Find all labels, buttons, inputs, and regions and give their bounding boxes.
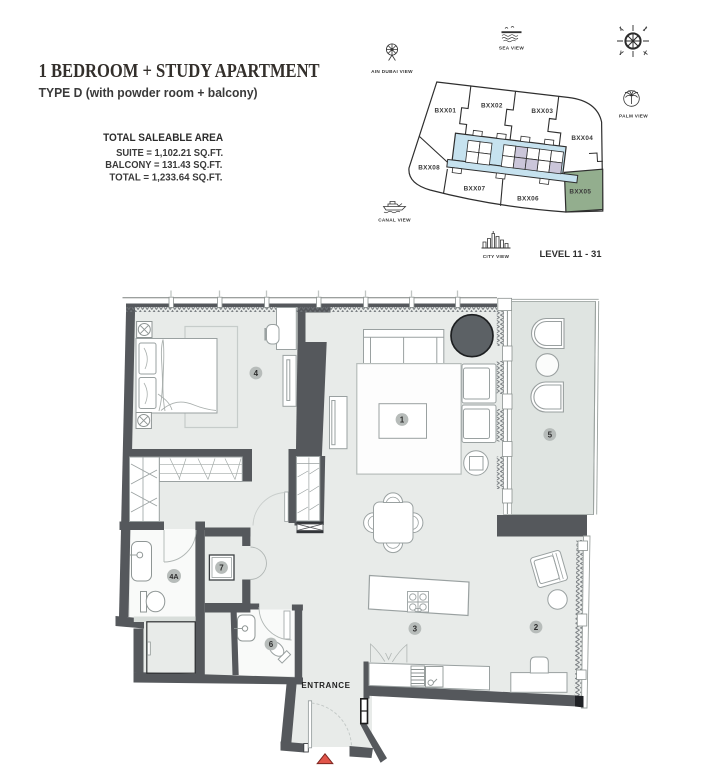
svg-text:7: 7 [219, 564, 224, 573]
svg-text:SEA VIEW: SEA VIEW [499, 46, 524, 51]
svg-text:BXX08: BXX08 [418, 165, 440, 172]
svg-text:BALCONY = 131.43 SQ.FT.: BALCONY = 131.43 SQ.FT. [105, 160, 222, 171]
svg-text:TOTAL SALEABLE AREA: TOTAL SALEABLE AREA [103, 132, 223, 144]
svg-text:BXX02: BXX02 [481, 103, 503, 110]
svg-text:5: 5 [548, 431, 553, 440]
svg-text:ENTRANCE: ENTRANCE [301, 681, 350, 690]
svg-text:CITY VIEW: CITY VIEW [483, 254, 510, 259]
svg-text:BXX07: BXX07 [464, 185, 486, 192]
svg-text:1 BEDROOM + STUDY APARTMENT: 1 BEDROOM + STUDY APARTMENT [39, 60, 321, 82]
svg-text:TOTAL = 1,233.64 SQ.FT.: TOTAL = 1,233.64 SQ.FT. [109, 172, 222, 183]
svg-text:AIN DUBAI VIEW: AIN DUBAI VIEW [371, 69, 413, 74]
svg-text:6: 6 [269, 640, 274, 649]
svg-text:BXX03: BXX03 [531, 108, 553, 115]
svg-text:3: 3 [413, 625, 418, 634]
svg-text:2: 2 [534, 623, 539, 632]
svg-text:1: 1 [400, 416, 405, 425]
svg-text:4: 4 [254, 369, 259, 378]
svg-text:LEVEL 11 - 31: LEVEL 11 - 31 [540, 249, 602, 259]
svg-text:BXX06: BXX06 [517, 196, 539, 203]
svg-text:BXX04: BXX04 [571, 135, 593, 142]
svg-text:PALM VIEW: PALM VIEW [619, 114, 648, 119]
svg-text:TYPE D (with powder room + bal: TYPE D (with powder room + balcony) [39, 85, 258, 100]
svg-text:BXX01: BXX01 [435, 108, 457, 115]
svg-text:CANAL VIEW: CANAL VIEW [378, 218, 411, 223]
svg-text:BXX05: BXX05 [569, 188, 591, 195]
svg-text:4A: 4A [169, 572, 178, 581]
svg-text:SUITE = 1,102.21 SQ.FT.: SUITE = 1,102.21 SQ.FT. [116, 148, 223, 159]
